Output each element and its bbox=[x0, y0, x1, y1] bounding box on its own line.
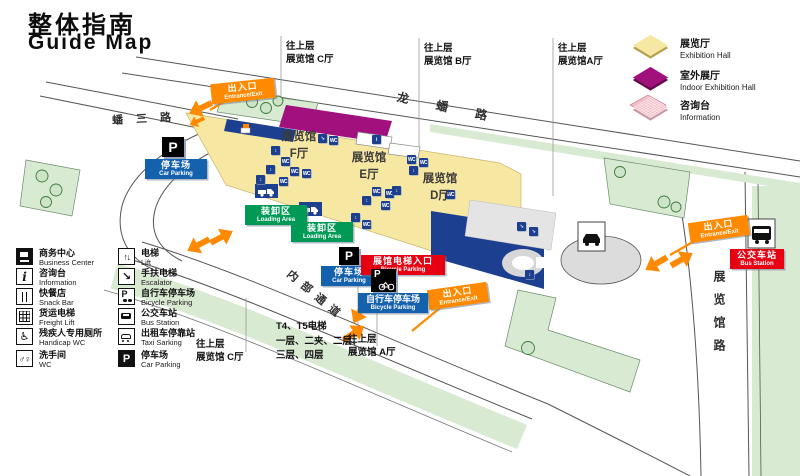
legend-item-information: 咨询台 Information bbox=[16, 268, 77, 287]
marker-zh: 装卸区 bbox=[247, 207, 305, 217]
wc-icon: WC bbox=[419, 158, 428, 167]
marker-zh: 自行车停车场 bbox=[360, 295, 426, 305]
legend-en: Snack Bar bbox=[39, 298, 74, 307]
information-icon: i bbox=[372, 135, 381, 144]
link-line2: 展览馆 B厅 bbox=[424, 55, 472, 68]
wc-icon: WC bbox=[372, 187, 381, 196]
legend-zh: 展览厅 bbox=[680, 38, 731, 51]
legend-label-outdoor-hall: 室外展厅 Indoor Exhibition Hall bbox=[680, 70, 756, 93]
hall-zh: 展览馆 bbox=[338, 150, 400, 167]
legend-zh: 咨询台 bbox=[39, 268, 77, 278]
legend-item-escalator: 手扶电梯 Escalator bbox=[118, 268, 177, 287]
legend-en: Indoor Exhibition Hall bbox=[680, 83, 756, 93]
lift-icon: ↕ bbox=[525, 270, 534, 279]
taxi-icon bbox=[118, 328, 135, 345]
lift-icon: ↕ bbox=[392, 186, 401, 195]
marker-zh: 停车场 bbox=[147, 161, 205, 171]
wc-icon: WC bbox=[329, 136, 338, 145]
marker-zh: 装卸区 bbox=[293, 224, 351, 234]
loading-area-marker-2: 装卸区 Loading Area bbox=[291, 222, 353, 242]
legend-item-car-parking: 停车场 Car Parking bbox=[118, 350, 181, 369]
legend-en: Business Center bbox=[39, 258, 94, 267]
link-line1: 往上层 bbox=[424, 42, 472, 55]
note-line2: 一层、二夹、二层、 bbox=[276, 335, 362, 350]
hall-label-f: 展览馆 F厅 bbox=[268, 129, 330, 164]
snack-bar-icon bbox=[16, 288, 33, 305]
marker-zh: 展馆电梯入口 bbox=[363, 257, 443, 267]
escalator-icon: ↘ bbox=[517, 222, 526, 231]
marker-en: Car Parking bbox=[323, 278, 375, 285]
lift-icon: ↕ bbox=[351, 213, 360, 222]
legend-en: Escalator bbox=[141, 278, 177, 287]
link-bottom-hall-c: 往上层 展览馆 C厅 bbox=[196, 338, 244, 365]
legend-item-freight-lift: 货运电梯 Freight Lift bbox=[16, 308, 75, 327]
hall-letter: E厅 bbox=[338, 167, 400, 184]
hall-letter: D厅 bbox=[414, 188, 466, 205]
legend-zh: 电梯 bbox=[141, 248, 159, 258]
legend-en: Information bbox=[39, 278, 77, 287]
wc-icon: WC bbox=[290, 167, 299, 176]
legend-zh: 自行车停车场 bbox=[141, 288, 195, 298]
legend-label-information: 咨询台 Information bbox=[680, 100, 720, 123]
legend-zh: 室外展厅 bbox=[680, 70, 756, 83]
legend-en: WC bbox=[39, 360, 66, 369]
information-icon bbox=[16, 268, 33, 285]
p-letter: P bbox=[374, 269, 381, 280]
hall-zh: 展览馆 bbox=[414, 171, 466, 188]
legend-en: Car Parking bbox=[141, 360, 181, 369]
wc-icon: WC bbox=[362, 220, 371, 229]
legend-en: Information bbox=[680, 113, 720, 123]
bicycle-glyph bbox=[378, 281, 395, 291]
link-line2: 展览馆A厅 bbox=[558, 55, 603, 68]
marker-en: Bicycle Parking bbox=[360, 305, 426, 312]
wc-icon: WC bbox=[302, 169, 311, 178]
wc-icon: WC bbox=[279, 177, 288, 186]
lift-icon bbox=[118, 248, 135, 265]
legend-zh: 咨询台 bbox=[680, 100, 720, 113]
p-letter: P bbox=[345, 249, 353, 263]
car-parking-p-icon: P bbox=[162, 137, 184, 157]
link-top-hall-a: 往上层 展览馆A厅 bbox=[558, 42, 603, 69]
legend-item-taxi: 出租车停靠站 Taxi Sarking bbox=[118, 328, 195, 347]
business-center-icon bbox=[16, 248, 33, 265]
legend-item-wc: 洗手间 WC bbox=[16, 350, 66, 369]
lift-icon: ↕ bbox=[256, 175, 265, 184]
escalator-icon: ↘ bbox=[529, 227, 538, 236]
marker-zh: 公交车站 bbox=[732, 251, 782, 261]
link-line2: 展览馆 C厅 bbox=[196, 351, 244, 364]
page-title-en: Guide Map bbox=[28, 31, 153, 55]
legend-en: Bus Station bbox=[141, 318, 179, 327]
note-line3: 三层、四层 bbox=[276, 349, 362, 364]
legend-zh: 货运电梯 bbox=[39, 308, 75, 318]
bicycle-parking-icon bbox=[118, 288, 135, 305]
wc-icon bbox=[16, 350, 33, 367]
legend-en: Exhibition Hall bbox=[680, 51, 731, 61]
legend-zh: 手扶电梯 bbox=[141, 268, 177, 278]
marker-en: Loading Area bbox=[293, 234, 351, 241]
link-line2: 展览馆 C厅 bbox=[286, 53, 334, 66]
hall-label-d: 展览馆 D厅 bbox=[414, 171, 466, 206]
legend-en: Taxi Sarking bbox=[141, 338, 195, 347]
lift-icon: ↕ bbox=[362, 196, 371, 205]
car-parking-marker-west: 停车场 Car Parking bbox=[145, 159, 207, 179]
bus-station-marker: 公交车站 Bus Station bbox=[730, 249, 784, 269]
marker-en: Car Parking bbox=[147, 171, 205, 178]
lift-floors-note: T4、T5电梯 一层、二夹、二层、 三层、四层 bbox=[276, 320, 362, 364]
legend-zh: 停车场 bbox=[141, 350, 181, 360]
link-line1: 往上层 bbox=[558, 42, 603, 55]
legend-zh: 洗手间 bbox=[39, 350, 66, 360]
legend-zh: 商务中心 bbox=[39, 248, 94, 258]
hall-letter: F厅 bbox=[268, 146, 330, 163]
bicycle-parking-marker: 自行车停车场 Bicycle Parking bbox=[358, 293, 428, 313]
wc-icon: WC bbox=[381, 201, 390, 210]
marker-en: Bus Station bbox=[732, 261, 782, 268]
legend-zh: 快餐店 bbox=[39, 288, 74, 298]
lift-icon: ↕ bbox=[266, 165, 275, 174]
legend-item-bus-station: 公交车站 Bus Station bbox=[118, 308, 179, 327]
legend-en: Freight Lift bbox=[39, 318, 75, 327]
link-line1: 往上层 bbox=[196, 338, 244, 351]
hall-label-e: 展览馆 E厅 bbox=[338, 150, 400, 185]
legend-item-business-center: 商务中心 Business Center bbox=[16, 248, 94, 267]
legend-en: Handicap WC bbox=[39, 338, 102, 347]
note-line1: T4、T5电梯 bbox=[276, 320, 362, 335]
link-top-hall-b: 往上层 展览馆 B厅 bbox=[424, 42, 472, 69]
legend-item-bicycle-parking: 自行车停车场 Bicycle Parking bbox=[118, 288, 195, 307]
wc-icon: WC bbox=[407, 155, 416, 164]
legend-item-lift: 电梯 Lift bbox=[118, 248, 159, 267]
legend-zh: 出租车停靠站 bbox=[141, 328, 195, 338]
link-line1: 往上层 bbox=[286, 40, 334, 53]
legend-label-exhibition-hall: 展览厅 Exhibition Hall bbox=[680, 38, 731, 61]
p-letter: P bbox=[168, 139, 177, 155]
car-parking-p-icon: P bbox=[339, 247, 359, 265]
link-top-hall-c: 往上层 展览馆 C厅 bbox=[286, 40, 334, 67]
freight-lift-icon bbox=[16, 308, 33, 325]
legend-en: Lift bbox=[141, 258, 159, 267]
escalator-icon bbox=[118, 268, 135, 285]
legend-zh: 公交车站 bbox=[141, 308, 179, 318]
legend-en: Bicycle Parking bbox=[141, 298, 195, 307]
legend-item-snack-bar: 快餐店 Snack Bar bbox=[16, 288, 74, 307]
bus-station-icon bbox=[118, 308, 135, 325]
legend-zh: 残疾人专用厕所 bbox=[39, 328, 102, 338]
road-name-zhanlanguan: 展览馆路 bbox=[711, 270, 728, 362]
hall-zh: 展览馆 bbox=[268, 129, 330, 146]
bicycle-parking-p-icon: P bbox=[371, 269, 396, 292]
car-parking-icon bbox=[118, 350, 135, 367]
guide-map-canvas: ↘WC↕WC↕WCWC↕WCiWCWC↕WCWC↕WC↕↕WCWC↘↘↕ 整体指… bbox=[0, 0, 800, 476]
legend-item-handicap-wc: 残疾人专用厕所 Handicap WC bbox=[16, 328, 102, 347]
handicap-wc-icon bbox=[16, 328, 33, 345]
